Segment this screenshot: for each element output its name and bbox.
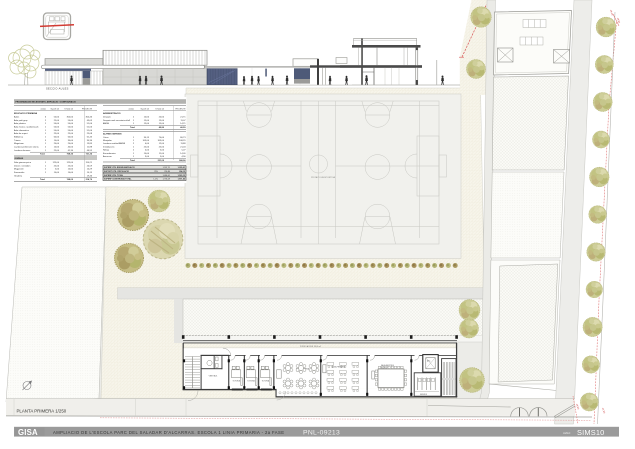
svg-text:SUPORT UTIL CIRCULACIO: SUPORT UTIL CIRCULACIO [104,170,129,173]
svg-text:Aula plastica: Aula plastica [14,122,27,125]
svg-text:103,00: 103,00 [158,140,165,142]
svg-text:49,03: 49,03 [87,120,93,122]
svg-text:198,00: 198,00 [67,179,74,181]
svg-text:10,00: 10,00 [54,140,60,142]
svg-text:46,95: 46,95 [87,150,93,152]
svg-text:14,21: 14,21 [180,123,186,125]
svg-text:20,00: 20,00 [54,143,60,145]
svg-text:Total: Total [130,159,135,162]
svg-text:25,00: 25,00 [144,146,150,148]
svg-text:1,17x: 1,17x [153,179,158,181]
svg-text:1.736,29: 1.736,29 [163,179,170,181]
svg-text:70,00: 70,00 [159,137,165,139]
svg-text:Aula informatica: Aula informatica [14,129,30,132]
svg-text:Lavabos alumnes: Lavabos alumnes [14,150,30,152]
svg-text:Magatzem: Magatzem [14,142,24,145]
svg-text:1.871,46: 1.871,46 [178,178,185,181]
svg-text:10,15: 10,15 [87,172,93,174]
svg-text:10,00: 10,00 [68,169,74,171]
svg-text:103,00: 103,00 [143,140,150,142]
svg-text:721,26: 721,26 [86,154,93,156]
svg-text:294,12: 294,12 [179,170,185,173]
svg-text:50,00: 50,00 [68,120,74,122]
svg-text:Biblioteca: Biblioteca [14,136,24,139]
svg-text:AMPLIACIO DE L'ESCOLA PARC DEL: AMPLIACIO DE L'ESCOLA PARC DEL SALADAR D… [53,430,284,435]
svg-text:296,80: 296,80 [164,171,170,173]
svg-text:Menjador: Menjador [103,139,112,142]
svg-text:10,00: 10,00 [68,172,74,174]
svg-text:1.229,01: 1.229,01 [178,167,185,169]
svg-text:25,08: 25,08 [87,133,93,135]
svg-text:Ascensor: Ascensor [103,155,112,158]
svg-text:Total: Total [130,126,135,129]
svg-text:21,04: 21,04 [180,146,186,148]
svg-text:50,00: 50,00 [68,123,74,125]
svg-text:1.484,01: 1.484,01 [163,175,170,177]
svg-text:Magatzem: Magatzem [14,168,24,171]
svg-text:unitats: unitats [40,108,46,111]
svg-text:11,88: 11,88 [87,146,93,148]
svg-text:PROGRAMA DE NECESSITATS. AMPLI: PROGRAMA DE NECESSITATS. AMPLIACIO I CON… [16,100,77,103]
svg-text:TUTORIA: TUTORIA [247,379,255,382]
svg-text:19,89: 19,89 [87,143,93,145]
svg-text:11,00: 11,00 [159,153,165,155]
svg-text:SUPERF UTIL TOTAL: SUPERF UTIL TOTAL [104,174,124,177]
svg-text:19,46: 19,46 [87,175,93,177]
svg-text:TUTORIA: TUTORIA [262,379,270,382]
svg-text:15,00: 15,00 [159,123,165,125]
svg-text:14,09: 14,09 [180,153,186,155]
svg-text:15,00: 15,00 [159,120,165,122]
svg-text:1.523,13: 1.523,13 [178,175,185,177]
svg-text:50,00: 50,00 [54,123,60,125]
svg-text:PISTA POLIESPORTIVA: PISTA POLIESPORTIVA [311,176,335,179]
svg-text:24,59: 24,59 [87,165,93,167]
svg-text:25,00: 25,00 [68,165,74,167]
svg-text:Installacions: Installacions [103,145,114,148]
svg-text:125,00: 125,00 [53,162,60,164]
svg-text:49,80: 49,80 [159,126,165,129]
svg-text:Dutxes i vestidors: Dutxes i vestidors [14,164,30,167]
svg-text:51,06: 51,06 [87,127,93,129]
svg-text:Neteja: Neteja [103,149,110,152]
svg-text:12,00: 12,00 [159,143,165,145]
svg-text:PROJECTE: PROJECTE [82,109,93,111]
svg-text:150,21: 150,21 [86,162,93,164]
svg-text:ALTRES SERVEIS: ALTRES SERVEIS [103,133,122,136]
svg-text:11,07: 11,07 [180,120,186,122]
svg-text:21,71: 21,71 [180,117,186,119]
svg-text:51,06: 51,06 [87,130,93,132]
svg-text:10,00: 10,00 [54,172,60,174]
svg-text:50,00: 50,00 [68,130,74,132]
svg-text:Aula petit grup: Aula petit grup [14,119,28,122]
svg-text:GIMNAS: GIMNAS [15,157,24,160]
svg-text:S Total util: S Total util [64,108,73,111]
svg-text:30,00: 30,00 [68,140,74,142]
svg-text:10,00: 10,00 [54,146,60,148]
svg-text:Superf util: Superf util [50,108,59,111]
svg-text:VESTIBUL: VESTIBUL [209,376,218,378]
svg-text:PORXO ACCES 118,3 m2: PORXO ACCES 118,3 m2 [300,345,321,348]
svg-text:AMPA: AMPA [103,122,109,125]
svg-text:Farmaciola: Farmaciola [14,171,25,174]
svg-text:1.187,21: 1.187,21 [163,167,170,169]
svg-text:Aula musica i audiovisuals: Aula musica i audiovisuals [14,126,38,129]
svg-text:20,00: 20,00 [159,117,165,119]
svg-text:50,00: 50,00 [54,127,60,129]
svg-text:EDUCACIO PRIMARIA: EDUCACIO PRIMARIA [14,112,38,115]
svg-text:61,43: 61,43 [87,137,93,139]
svg-text:25,00: 25,00 [54,120,60,122]
svg-text:Aula de suport: Aula de suport [14,132,28,135]
svg-text:Superf util: Superf util [140,108,149,111]
svg-text:25,00: 25,00 [54,133,60,135]
svg-text:708,30: 708,30 [67,154,74,156]
svg-text:S Total util: S Total util [155,108,164,111]
svg-text:246,06: 246,06 [179,159,186,162]
svg-text:PLANTA PRIMERA 1/250: PLANTA PRIMERA 1/250 [17,409,67,414]
svg-text:SIMS10: SIMS10 [577,428,605,437]
svg-text:Graderia: Graderia [14,174,23,177]
svg-text:10,00: 10,00 [144,153,150,155]
svg-text:unitats: unitats [128,108,134,111]
svg-text:SERVEIS: SERVEIS [420,394,427,396]
svg-text:25,00: 25,00 [54,150,60,152]
svg-text:50,00: 50,00 [54,130,60,132]
svg-text:40,00: 40,00 [68,146,74,148]
svg-text:10,29: 10,29 [87,169,93,171]
svg-text:41,30: 41,30 [68,150,74,152]
svg-text:ADMINISTRACIO: ADMINISTRACIO [103,112,121,115]
svg-text:PROJECTE: PROJECTE [175,109,186,111]
svg-text:231,00: 231,00 [158,160,165,162]
svg-text:PNL-09213: PNL-09213 [303,430,340,437]
svg-text:60,00: 60,00 [54,137,60,139]
svg-text:Escombraries: Escombraries [103,152,116,155]
svg-text:214,70: 214,70 [86,178,93,181]
svg-text:Lavabos vestibul-AMPA: Lavabos vestibul-AMPA [103,142,126,145]
svg-text:108,29: 108,29 [179,140,186,142]
svg-text:Tutoria: Tutoria [14,139,21,142]
svg-text:25,00: 25,00 [54,165,60,167]
svg-text:SECCIO AULES: SECCIO AULES [46,86,69,90]
svg-text:GISA: GISA [18,428,38,437]
svg-text:50,00: 50,00 [54,117,60,119]
svg-text:60,00: 60,00 [68,137,74,139]
svg-text:300,46: 300,46 [86,117,93,119]
svg-text:30,36: 30,36 [87,140,93,142]
svg-text:15,00: 15,00 [144,120,150,122]
svg-text:50,00: 50,00 [68,127,74,129]
svg-text:25,00: 25,00 [68,133,74,135]
svg-text:300,00: 300,00 [67,117,74,119]
svg-text:25%: 25% [154,171,158,173]
svg-text:SUPERF CONSTRUIDA TOTAL: SUPERF CONSTRUIDA TOTAL [104,178,132,181]
svg-text:46,99: 46,99 [180,126,186,129]
svg-text:AULA PRIMARIA: AULA PRIMARIA [332,366,346,369]
svg-text:15,00: 15,00 [144,123,150,125]
svg-text:TUTORIA: TUTORIA [233,379,241,382]
svg-text:LEMA:: LEMA: [563,431,571,435]
svg-text:Sala gimnas-psico: Sala gimnas-psico [14,162,32,164]
svg-text:11,88: 11,88 [180,143,186,145]
svg-text:25,00: 25,00 [159,146,165,148]
svg-text:10,00: 10,00 [144,117,150,119]
svg-text:Despatx: Despatx [103,116,112,119]
svg-text:80,73: 80,73 [180,137,186,139]
svg-text:Lavabos professors tutoria: Lavabos professors tutoria [14,145,39,148]
svg-text:30,15: 30,15 [144,137,150,139]
svg-text:Despatx amb secretaria-altell: Despatx amb secretaria-altell [103,119,130,122]
svg-text:Total: Total [40,178,45,181]
svg-text:SUPERF UTIL ESPAIS AMPLIACIO: SUPERF UTIL ESPAIS AMPLIACIO [104,166,135,169]
svg-text:125,00: 125,00 [67,162,74,164]
svg-text:Aules: Aules [14,116,19,119]
svg-text:Cuina: Cuina [103,137,109,139]
svg-text:51,06: 51,06 [87,123,93,125]
svg-text:20,00: 20,00 [68,143,74,145]
svg-text:Total: Total [40,153,45,156]
